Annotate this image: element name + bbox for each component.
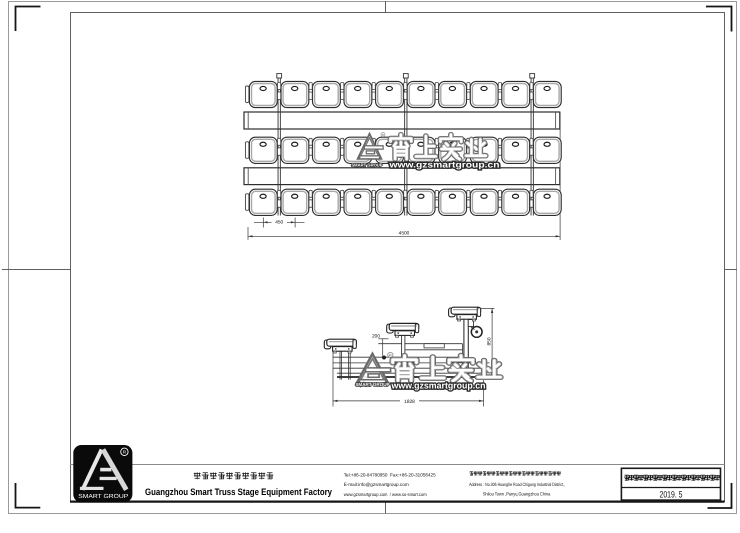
svg-text:Guangzhou Smart Truss Stage Eq: Guangzhou Smart Truss Stage Equipment Fa… [145,486,333,497]
svg-text:4500: 4500 [399,231,410,237]
svg-text:Tel:+86-20-84780950 Fax:+86-2: Tel:+86-20-84780950 Fax:+86-20-31056425 [344,472,436,477]
svg-text:1828: 1828 [404,399,415,405]
svg-text:Shilou Town ,Panyu,Guangzhou C: Shilou Town ,Panyu,Guangzhou China [483,492,551,497]
svg-text:SMART GROUP: SMART GROUP [351,163,382,168]
svg-text:E-mail:info@gzsmartgroup.com: E-mail:info@gzsmartgroup.com [344,482,409,487]
svg-text:SMART GROUP: SMART GROUP [355,382,389,387]
svg-text:Address : No.306 Huanghe Road: Address : No.306 Huanghe Road Chigang In… [469,482,565,487]
svg-text:www.gzsmartgroup.com / www.so: www.gzsmartgroup.com / www.so-smart.com [344,492,427,497]
svg-text:450: 450 [275,220,283,226]
svg-text:www.gzsmartgroup.cn: www.gzsmartgroup.cn [388,160,499,170]
svg-text:SMART GROUP: SMART GROUP [78,493,128,500]
svg-text:2019. 5: 2019. 5 [660,490,683,500]
svg-text:850: 850 [487,337,493,345]
svg-text:www.gzsmartgroup.cn: www.gzsmartgroup.cn [391,380,486,390]
